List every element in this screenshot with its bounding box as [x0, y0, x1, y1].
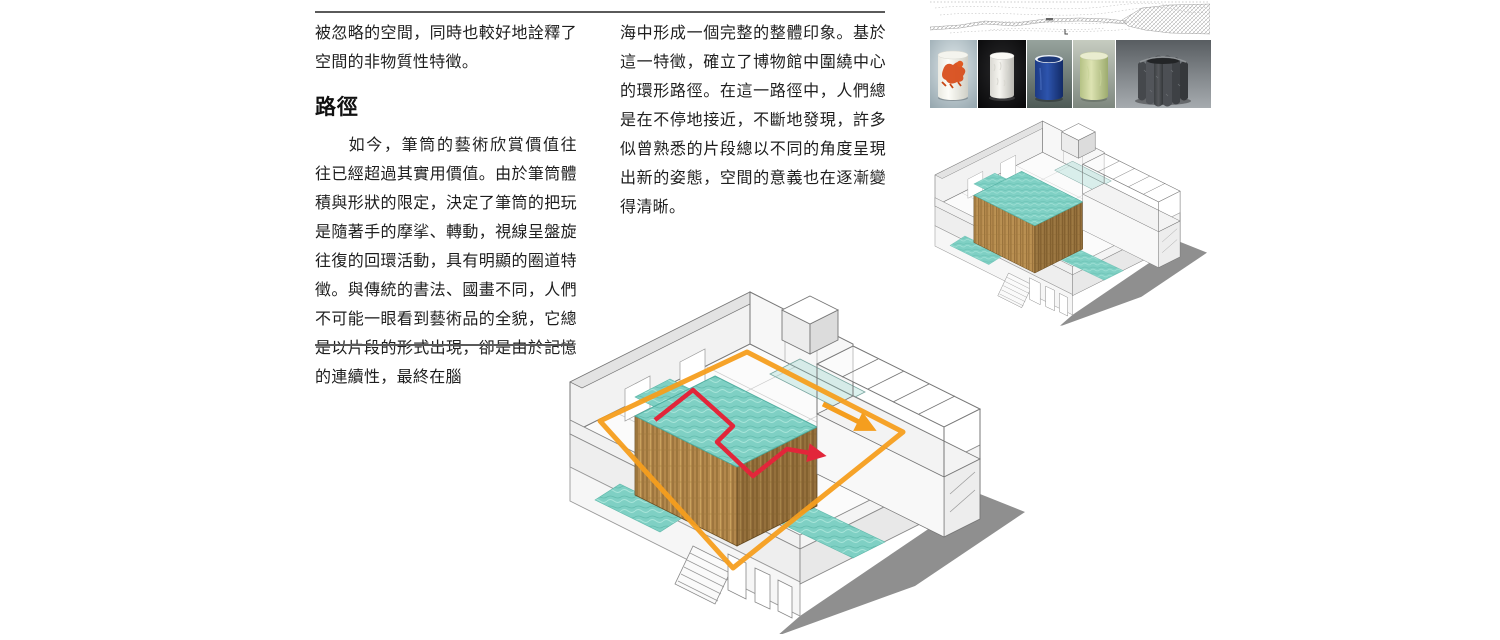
header-rule	[315, 11, 885, 13]
paragraph: 如今，筆筒的藝術欣賞價值往往已經超過其實用價值。由於筆筒體積與形狀的限定，決定了…	[315, 131, 577, 392]
paragraph-continued: 海中形成一個完整的整體印象。基於這一特徵，確立了博物館中圍繞中心的環形路徑。在這…	[620, 19, 886, 222]
paragraph-continued: 被忽略的空間，同時也較好地詮釋了空間的非物質性特徵。	[315, 19, 577, 77]
brushpot-photo-white-carved	[978, 40, 1026, 108]
portfolio-page: 被忽略的空間，同時也較好地詮釋了空間的非物質性特徵。 路徑 如今，筆筒的藝術欣賞…	[0, 0, 1500, 640]
brushpot-photo-red-lion	[930, 40, 977, 108]
brushpot-photo-celadon-jade	[1073, 40, 1115, 108]
brushpot-photo-blue-glaze	[1027, 40, 1072, 108]
left-text-column: 被忽略的空間，同時也較好地詮釋了空間的非物質性特徵。 路徑 如今，筆筒的藝術欣賞…	[315, 19, 577, 392]
site-plan-drawing	[930, 0, 1210, 38]
axonometric-diagram-large	[565, 283, 1030, 635]
brushpot-photo-strip	[930, 40, 1211, 108]
site-plan-map	[930, 0, 1210, 38]
map-label-mark	[1046, 18, 1053, 20]
left-column-footer-rule	[315, 344, 573, 346]
middle-text-column: 海中形成一個完整的整體印象。基於這一特徵，確立了博物館中圍繞中心的環形路徑。在這…	[620, 19, 886, 222]
section-heading: 路徑	[315, 92, 577, 122]
brushpot-photo-gray-stone-lobed	[1116, 40, 1211, 108]
axon-large-drawing	[565, 283, 1030, 635]
